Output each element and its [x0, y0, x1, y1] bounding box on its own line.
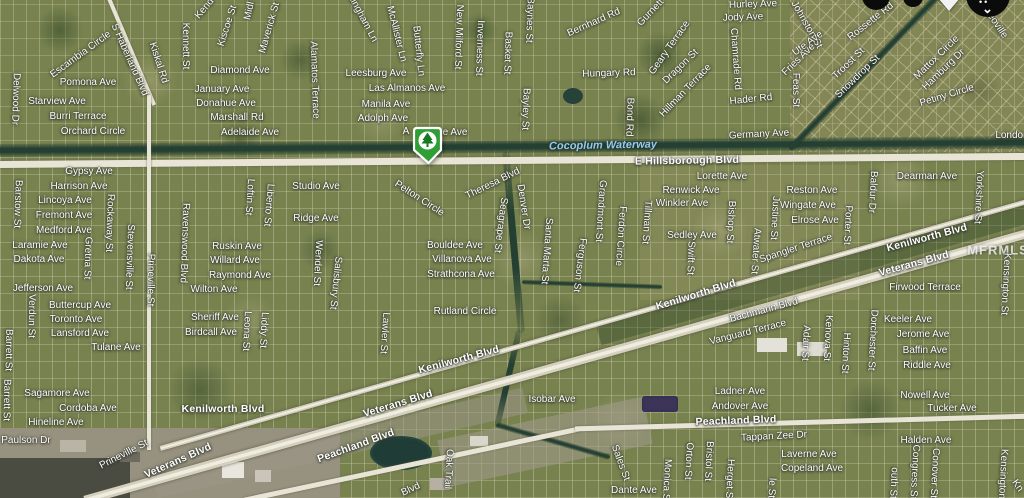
street-label: Strathcona Ave [427, 270, 495, 280]
street-label: Copeland Ave [781, 464, 843, 474]
street-label: Firwood Terrace [889, 283, 961, 293]
street-label: Lincoya Ave [38, 196, 92, 206]
street-label: lingham Ln [347, 0, 379, 44]
street-label: Grandmont St [593, 180, 607, 243]
street-label: Liberto St [261, 183, 275, 227]
street-label: Andover Ave [712, 402, 769, 412]
street-label: Theresa Blvd [464, 167, 521, 202]
street-label: Wendel St [311, 240, 323, 286]
street-label: Fremont Ave [36, 211, 93, 221]
street-label: Donahue Ave [196, 99, 256, 109]
street-label: Seagrape St [492, 197, 509, 253]
street-label: Dakota Ave [14, 255, 65, 265]
street-label: Lansford Ave [51, 329, 109, 339]
street-label: Delwood Dr [9, 73, 21, 126]
street-label: Renwick Ave [662, 186, 719, 196]
street-label: Gretna St [81, 236, 92, 279]
street-label: Butterfly Ln [410, 25, 425, 76]
street-label: Kensington St [995, 449, 1008, 498]
street-label: Paulson Dr [1, 436, 50, 446]
street-label: Inverness St [473, 20, 485, 76]
street-label: Harrison Ave [50, 182, 107, 192]
street-label: Germany Ave [729, 128, 790, 141]
street-label: Marshall Rd [210, 113, 263, 123]
street-label: Kiskal Rd [147, 41, 170, 84]
street-label: Bernhard Rd [566, 7, 622, 39]
street-label: January Ave [195, 85, 250, 95]
street-label: Winkler Ave [656, 199, 709, 209]
street-label: Tappan Zee Dr [741, 430, 808, 443]
street-label: Isobar Ave [528, 395, 575, 405]
street-label: Adelaide Ave [221, 128, 279, 138]
street-label: Yorkshire St [972, 170, 985, 224]
street-label: Raymond Ave [209, 271, 271, 281]
street-label: Halden Ave [901, 436, 952, 446]
street-label: Hungary Rd [582, 68, 636, 80]
street-label: Baffin Ave [903, 346, 948, 356]
street-label: Ridge Ave [293, 214, 338, 224]
street-label: Ravenswood Blvd [178, 203, 191, 283]
street-label: Kennett St [180, 23, 190, 70]
road-label: Kenilworth Blvd [182, 404, 265, 415]
street-label: Tillman St [639, 200, 652, 245]
street-label: Sales St [609, 444, 631, 482]
street-label: Rutland Circle [434, 307, 497, 317]
street-label: Swift St [684, 241, 695, 275]
street-label: London [995, 131, 1024, 141]
street-label: Pomona Ave [60, 78, 117, 88]
street-label: Jody Ave [723, 12, 764, 23]
street-label: Buttercup Ave [49, 301, 111, 311]
street-label: Willard Ave [210, 256, 260, 266]
street-label: Tucker Ave [927, 404, 976, 414]
street-label: Hader Rd [729, 93, 773, 107]
street-label: Orchard Circle [61, 127, 125, 137]
street-label: Wingate Ave [780, 201, 836, 211]
street-label: Verdun St [26, 294, 37, 338]
street-label: Liddy St [257, 312, 269, 349]
street-label: Leona St [240, 311, 252, 352]
street-label: Bachmann Blvd [729, 297, 799, 325]
arrow-down-icon[interactable] [938, 0, 960, 11]
street-label: Leesburg Ave [346, 69, 407, 79]
street-label: Alamatos Terrace [308, 41, 321, 119]
street-label: Laramie Ave [12, 241, 67, 251]
street-label: Kend [194, 0, 217, 21]
street-label: Dearman Ave [897, 172, 957, 182]
street-label: Blvd [400, 481, 422, 498]
street-label: Maverick St [258, 2, 282, 55]
street-label: Bayley St [519, 88, 530, 131]
street-label: Gypsy Ave [65, 167, 113, 177]
street-label: Salisbury St [327, 256, 343, 310]
street-label: Justine St [768, 196, 780, 240]
street-label: Vanguard Terrace [709, 319, 788, 348]
street-label: Jefferson Ave [13, 284, 73, 294]
street-label: Cordoba Ave [59, 404, 117, 414]
street-label: Tulane Ave [91, 343, 140, 353]
street-label: Bond Rd [623, 97, 634, 136]
street-label: Studio Ave [292, 182, 340, 192]
street-label: Orton St [682, 442, 694, 480]
street-label: Kiscoe St [217, 4, 240, 47]
street-label: le St [765, 478, 776, 498]
street-label: Lorette Ave [697, 172, 747, 182]
street-label: Herget St [723, 459, 735, 498]
street-label: Sheriff Ave [191, 313, 239, 323]
street-label: Oak Trail [442, 449, 454, 489]
street-label: Kenova St [821, 315, 833, 362]
road-label: Veterans Blvd [143, 442, 213, 481]
street-label: Ferdon Circle [613, 206, 627, 267]
street-label: Adair St [799, 325, 811, 361]
street-label: Wilton Ave [190, 285, 237, 295]
street-label: Starview Ave [28, 97, 86, 107]
street-label: Monica St [660, 459, 672, 498]
street-label: Ruskin Ave [212, 242, 262, 252]
street-label: Baldur Dr [866, 171, 878, 214]
waterway-label: Cocoplum Waterway [549, 140, 657, 153]
street-label: Birdcall Ave [185, 328, 237, 338]
street-label: Feas St [790, 73, 800, 107]
street-label: Reston Ave [787, 186, 838, 196]
street-label: Conover St [928, 448, 941, 498]
street-label: McAllister Ln [384, 5, 408, 63]
street-label: Escambia Circle [49, 30, 113, 81]
street-label: Diamond Ave [210, 66, 269, 76]
street-label: Dante Ave [611, 486, 657, 496]
street-label: Barstow St [11, 180, 23, 229]
street-label: Ladner Ave [715, 387, 765, 397]
street-label: Porter St [841, 205, 853, 245]
street-label: Gurnett [636, 0, 666, 28]
street-label: e Ave [443, 128, 468, 138]
street-label: Kn [1009, 478, 1024, 494]
street-label: A [403, 127, 410, 137]
street-label: Pelton Circle [392, 179, 445, 218]
street-label: Riddle Ave [903, 361, 951, 371]
road-label: Kenilworth Blvd [655, 278, 737, 312]
street-label: Barrett St [3, 329, 14, 371]
street-label: Hinton St [839, 332, 851, 374]
street-label: Elrose Ave [791, 216, 839, 226]
street-label: Bouldee Ave [427, 241, 483, 251]
street-label: Chamrade Rd [728, 28, 742, 91]
street-label: Manila Ave [362, 100, 411, 110]
street-label: Barrett St [1, 379, 12, 421]
street-label: Stevensville St [123, 224, 135, 290]
road-label: Kenilworth Blvd [418, 344, 501, 376]
street-label: Denver Dr [514, 184, 531, 231]
street-label: Las Almanos Ave [369, 84, 446, 94]
watermark-mfrmls: MFRMLS [967, 244, 1024, 257]
label-layer: Escambia CirclePomona AveStarview AveBur… [0, 0, 1024, 498]
road-label: Peachland Blvd [316, 427, 396, 465]
street-label: Bristol St [702, 441, 714, 481]
satellite-map[interactable]: Escambia CirclePomona AveStarview AveBur… [0, 0, 1024, 498]
chevron-down-icon[interactable]: ⌄ [982, 1, 993, 17]
street-label: Adolph Ave [358, 114, 408, 124]
street-label: Hurley Ave [729, 0, 778, 11]
street-label: Atwater St [748, 228, 761, 275]
street-label: Hineline Ave [28, 418, 83, 428]
street-label: Laverne Ave [781, 450, 836, 460]
street-label: Rockaway St [103, 194, 115, 253]
street-label: Jerome Ave [897, 330, 950, 340]
street-label: Nowell Ave [900, 391, 949, 401]
street-label: Ferguson St [571, 237, 588, 292]
street-label: Kensington St [998, 253, 1011, 316]
street-label: Medford Ave [36, 226, 92, 236]
street-label: Sagamore Ave [24, 389, 89, 399]
street-label: Midl [243, 1, 257, 21]
street-label: Basket St [501, 31, 512, 74]
street-label: Loftin St [243, 178, 256, 215]
street-label: Santa Marta St [539, 217, 554, 284]
street-label: Keeler Ave [884, 315, 932, 325]
street-label: Lawler St [378, 312, 391, 354]
street-label: Villanova Ave [432, 255, 492, 265]
street-label: Prineville St [98, 439, 150, 472]
street-label: Baynes St [523, 0, 535, 43]
street-label: Prineville St [145, 254, 156, 307]
road-label: Veterans Blvd [362, 388, 434, 419]
street-label: Sedley Ave [667, 231, 717, 241]
street-label: Burri Terrace [49, 112, 106, 122]
street-label: New Milford St [452, 4, 464, 69]
street-label: outh St [887, 467, 899, 498]
road-label: E Hillsborough Blvd [635, 155, 739, 167]
property-marker[interactable] [411, 126, 444, 170]
street-label: Toronto Ave [50, 315, 103, 325]
street-label: Congress St [908, 444, 921, 498]
street-label: Dorchester St [865, 309, 878, 371]
street-label: Bishop St [724, 200, 736, 243]
road-label: Peachland Blvd [695, 414, 776, 427]
road-label: Kenilworth Blvd [886, 222, 969, 254]
